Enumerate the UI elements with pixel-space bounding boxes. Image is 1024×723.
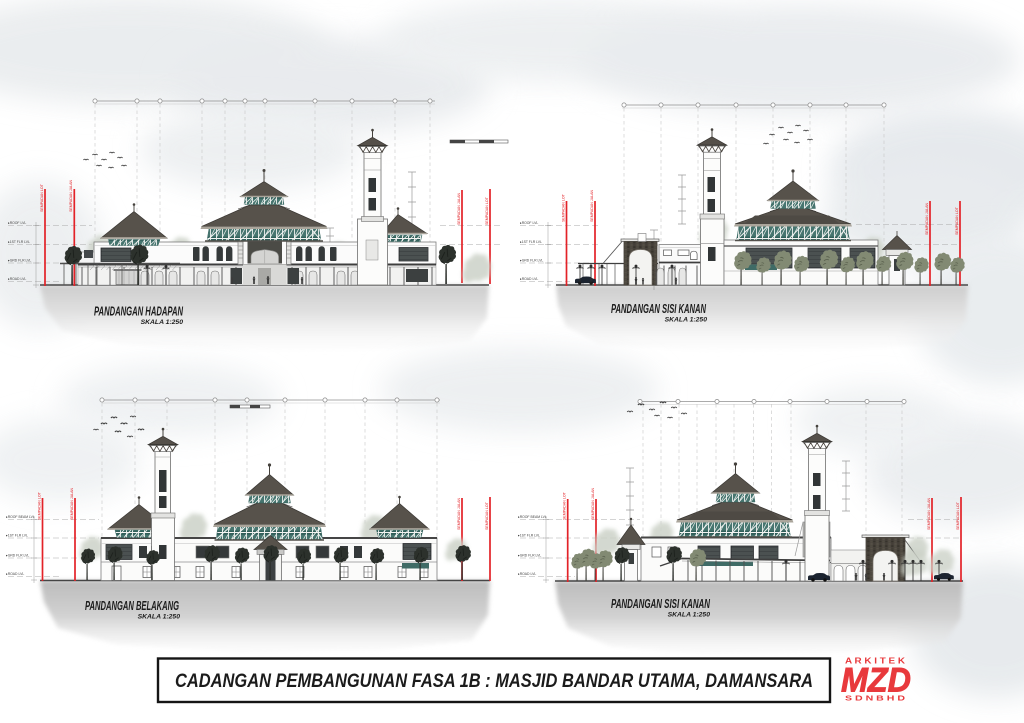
svg-text:▸ROOF LVL: ▸ROOF LVL	[8, 221, 26, 225]
svg-text:▸1ST FLR LVL: ▸1ST FLR LVL	[520, 240, 542, 244]
svg-text:SEMPADAN LOT: SEMPADAN LOT	[38, 491, 42, 520]
svg-text:SEMPADAN LOT: SEMPADAN LOT	[956, 501, 960, 530]
svg-text:SEMPADAN JALAN: SEMPADAN JALAN	[591, 488, 595, 520]
svg-text:SEMPADAN JALAN: SEMPADAN JALAN	[590, 190, 594, 222]
svg-text:PANDANGAN BELAKANG: PANDANGAN BELAKANG	[85, 598, 179, 613]
svg-text:SEMPADAN LOT: SEMPADAN LOT	[485, 196, 489, 225]
svg-text:SEMPADAN JALAN: SEMPADAN JALAN	[70, 488, 74, 520]
svg-text:▸1ST FLR LVL: ▸1ST FLR LVL	[6, 534, 28, 538]
svg-text:▸ROAD LVL: ▸ROAD LVL	[6, 572, 24, 576]
svg-text:▸ROAD LVL: ▸ROAD LVL	[8, 277, 26, 281]
svg-text:CADANGAN PEMBANGUNAN FASA 1B :: CADANGAN PEMBANGUNAN FASA 1B : MASJID BA…	[175, 670, 813, 692]
svg-text:SEMPADAN LOT: SEMPADAN LOT	[563, 491, 567, 520]
svg-text:▸ROOF LVL: ▸ROOF LVL	[520, 221, 538, 225]
svg-text:▸GRD FLR LVL: ▸GRD FLR LVL	[518, 554, 541, 558]
svg-text:▸ROAD LVL: ▸ROAD LVL	[520, 277, 538, 281]
svg-text:SEMPADAN JALAN: SEMPADAN JALAN	[69, 180, 73, 212]
svg-text:S D N B H D: S D N B H D	[845, 694, 906, 703]
svg-text:SKALA 1:250: SKALA 1:250	[138, 614, 181, 621]
svg-text:SEMPADAN LOT: SEMPADAN LOT	[955, 206, 959, 235]
svg-text:SEMPADAN LOT: SEMPADAN LOT	[562, 193, 566, 222]
svg-text:SEMPADAN JALAN: SEMPADAN JALAN	[457, 498, 461, 530]
svg-text:SEMPADAN JALAN: SEMPADAN JALAN	[925, 203, 929, 235]
svg-text:SKALA 1:250: SKALA 1:250	[668, 612, 711, 619]
svg-text:▸ROAD LVL: ▸ROAD LVL	[518, 572, 536, 576]
svg-text:SKALA 1:250: SKALA 1:250	[141, 319, 184, 326]
svg-text:▸GRD FLR LVL: ▸GRD FLR LVL	[520, 259, 543, 263]
svg-text:PANDANGAN SISI KANAN: PANDANGAN SISI KANAN	[611, 301, 706, 316]
svg-text:SEMPADAN JALAN: SEMPADAN JALAN	[927, 498, 931, 530]
svg-text:▸GRD FLR LVL: ▸GRD FLR LVL	[8, 259, 31, 263]
svg-text:▸1ST FLR LVL: ▸1ST FLR LVL	[518, 534, 540, 538]
svg-text:PANDANGAN SISI KANAN: PANDANGAN SISI KANAN	[611, 596, 710, 611]
svg-text:▸1ST FLR LVL: ▸1ST FLR LVL	[8, 240, 30, 244]
svg-text:SKALA 1:250: SKALA 1:250	[665, 317, 708, 324]
svg-text:▸ROOF BEAM LVL: ▸ROOF BEAM LVL	[518, 515, 547, 519]
svg-text:▸GRD FLR LVL: ▸GRD FLR LVL	[6, 554, 29, 558]
svg-text:SEMPADAN JALAN: SEMPADAN JALAN	[457, 193, 461, 225]
svg-text:▸ROOF BEAM LVL: ▸ROOF BEAM LVL	[6, 515, 35, 519]
svg-text:SEMPADAN LOT: SEMPADAN LOT	[485, 501, 489, 530]
svg-text:SEMPADAN LOT: SEMPADAN LOT	[40, 183, 44, 212]
svg-text:PANDANGAN HADAPAN: PANDANGAN HADAPAN	[94, 304, 183, 319]
